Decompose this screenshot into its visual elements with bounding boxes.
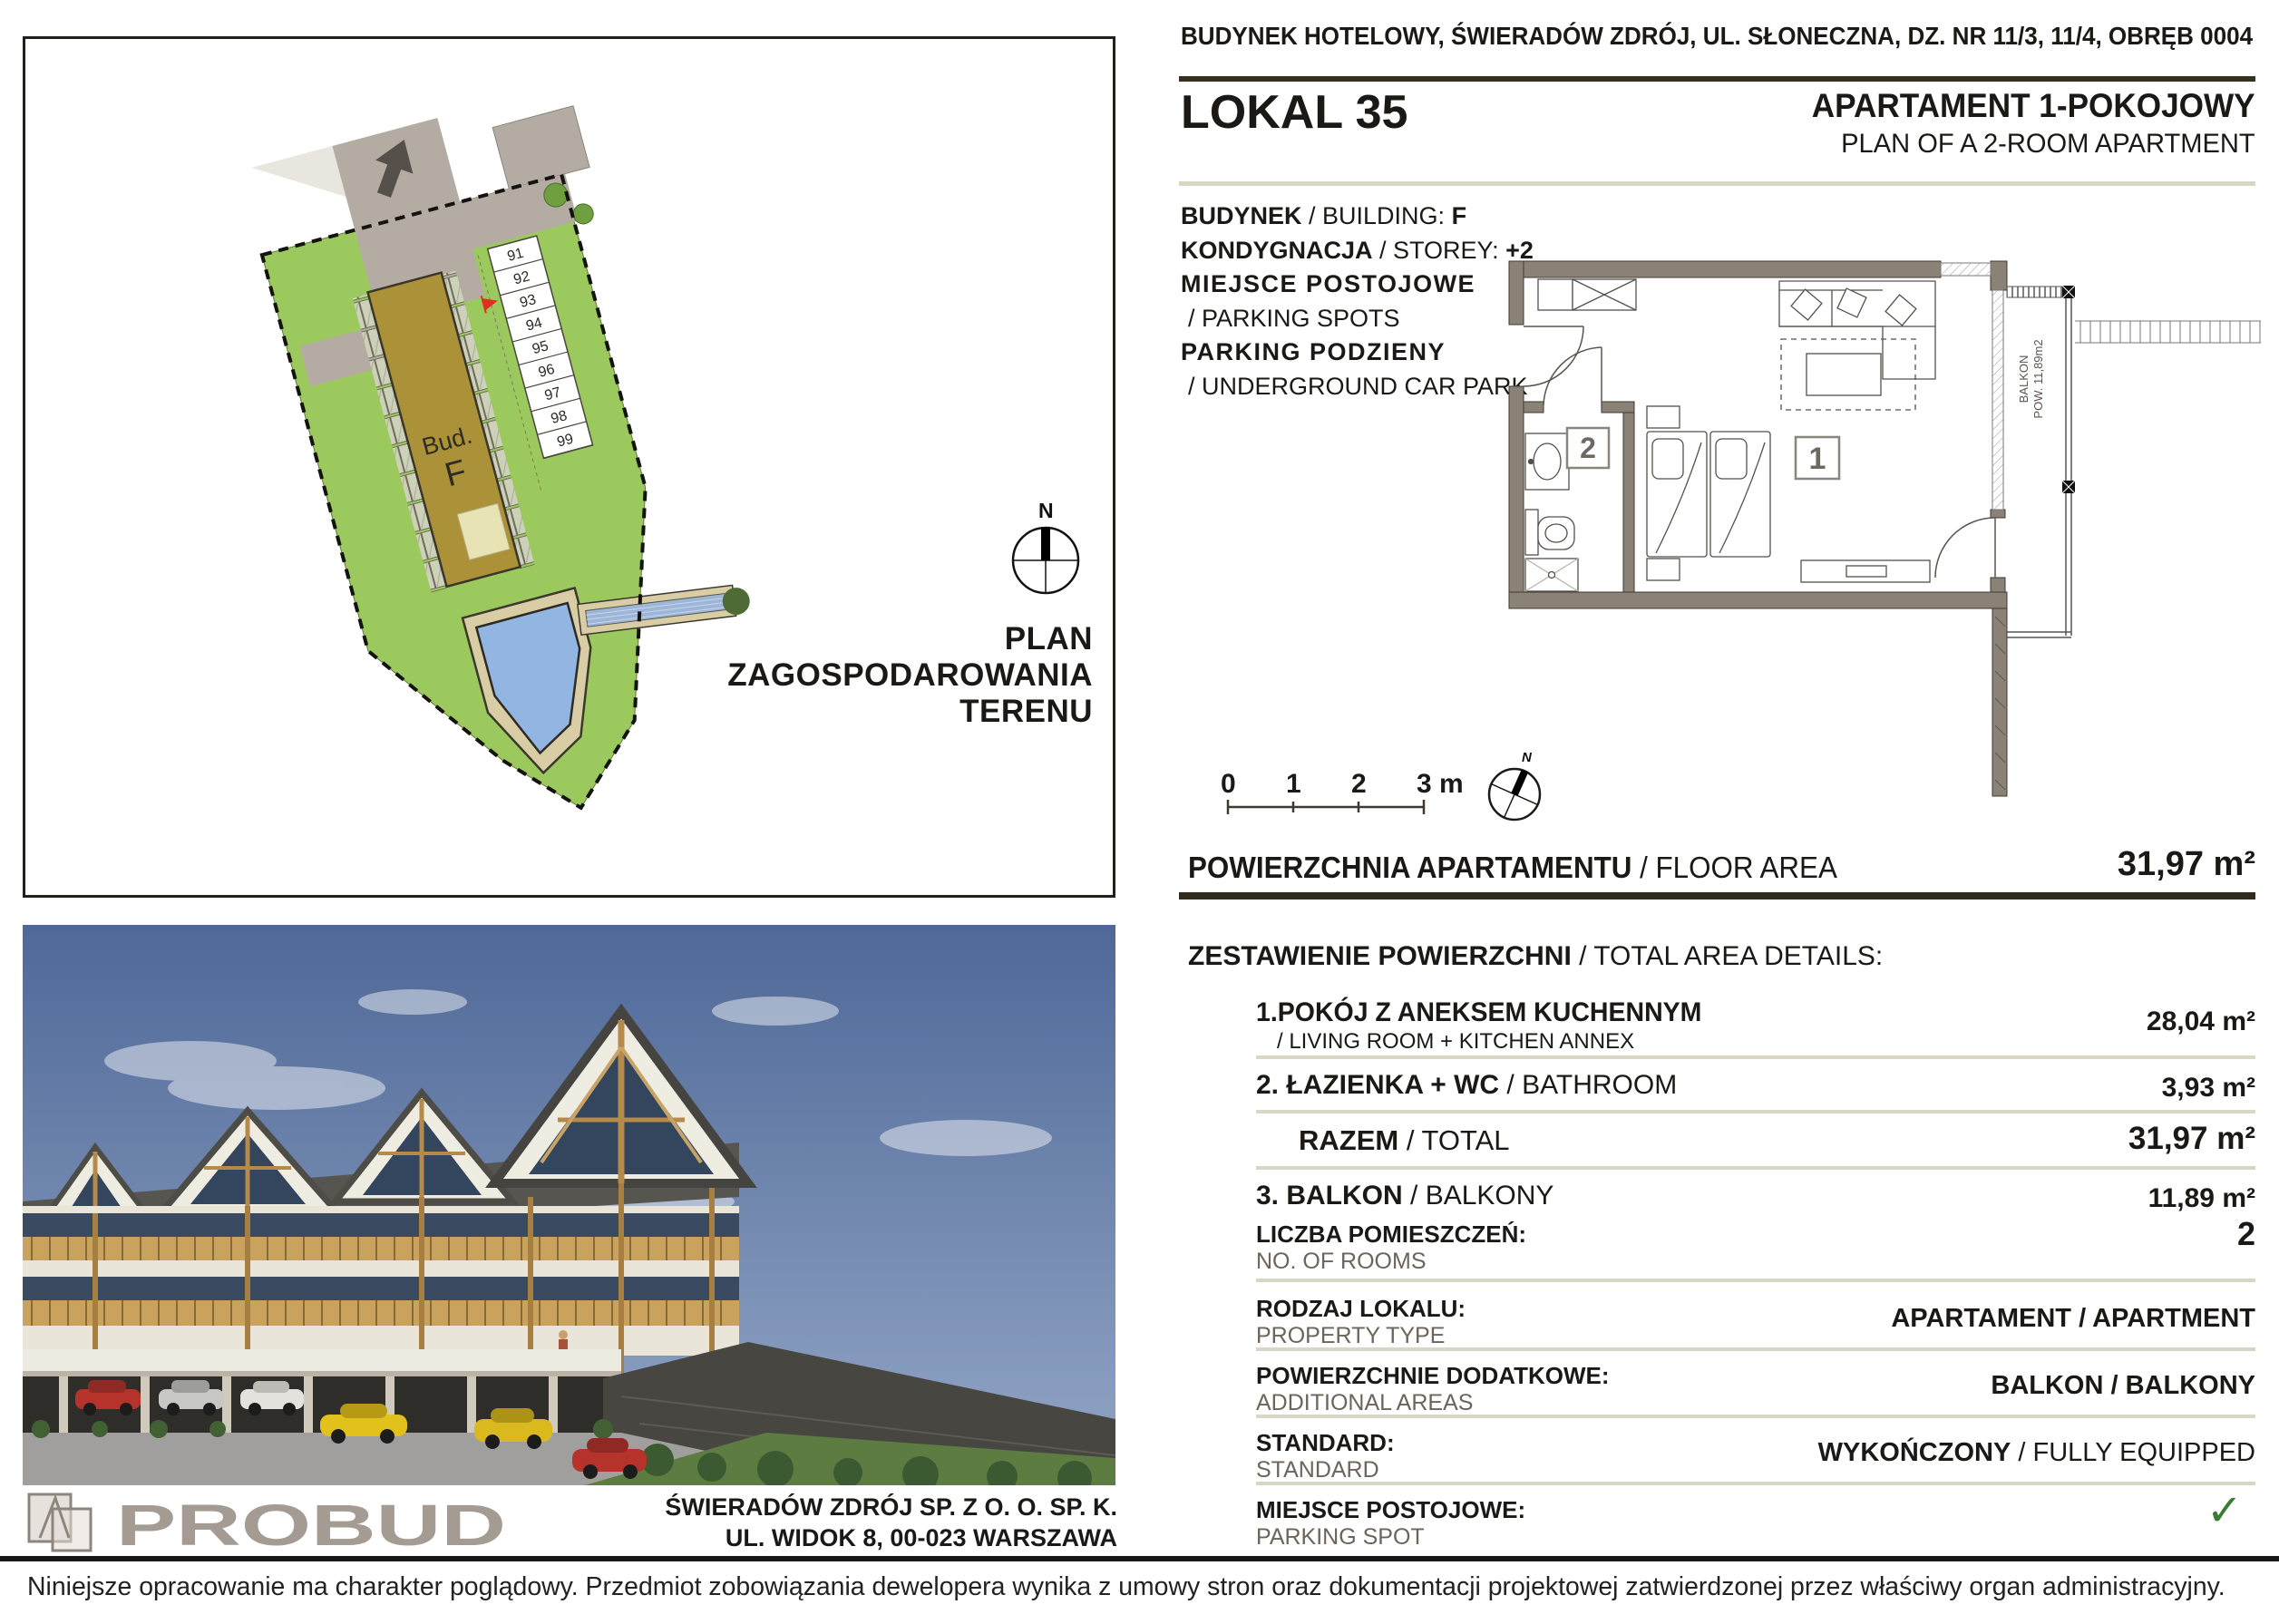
detail-storey: KONDYGNACJA / STOREY: +2: [1181, 234, 1534, 268]
site-plan-panel: Bud. F 91 92 93 94 95 96 97 98 99: [23, 36, 1115, 898]
table-separator: [1256, 1347, 2255, 1351]
probud-logo-mark-icon: [29, 1494, 91, 1551]
prop3-label-pl: POWIERZCHNIE DODATKOWE:: [1256, 1362, 1610, 1390]
scale-tick-label: 3 m: [1417, 769, 1464, 799]
area-row2-value: 3,93 m²: [2162, 1073, 2255, 1104]
svg-text:N: N: [1038, 499, 1054, 522]
floor-area-pl: POWIERZCHNIA APARTAMENTU: [1188, 851, 1631, 884]
external-stairs: [2075, 321, 2261, 343]
area-row4-pl: 3. BALKON: [1256, 1181, 1403, 1211]
parking-check-icon: ✓: [2206, 1485, 2243, 1536]
area-row4-label: 3. BALKON / BALKONY: [1256, 1181, 1553, 1211]
balcony: BALKON POW. 11,89m2: [2007, 286, 2075, 637]
address-header: BUDYNEK HOTELOWY, ŚWIERADÓW ZDRÓJ, UL. S…: [1181, 22, 2253, 51]
scale-bar: 0 1 2 3 m: [1212, 767, 1484, 825]
room2-label: 2: [1580, 432, 1596, 464]
prop1-value: 2: [2237, 1215, 2255, 1253]
prop4-value-pl: WYKOŃCZONY: [1818, 1438, 2011, 1467]
area-row2-label: 2. ŁAZIENKA + WC / BATHROOM: [1256, 1070, 1677, 1101]
footer-divider: [0, 1556, 2279, 1561]
site-plan-title-line: ZAGOSPODAROWANIA: [727, 657, 1093, 694]
detail-garage-en: / UNDERGROUND CAR PARK: [1181, 370, 1534, 404]
apartment-card-page: Bud. F 91 92 93 94 95 96 97 98 99: [0, 0, 2279, 1624]
header-rule: [1179, 76, 2255, 82]
probud-logo: PROBUD: [25, 1489, 533, 1560]
probud-wordmark: PROBUD: [116, 1493, 506, 1558]
terrace-shadow: [23, 1371, 621, 1376]
prop3-label-en: ADDITIONAL AREAS: [1256, 1390, 1473, 1416]
sink-tap: [1529, 460, 1534, 464]
detail-garage-pl: PARKING PODZIENY: [1181, 335, 1534, 370]
room1-label: 1: [1809, 442, 1826, 476]
table-separator: [1256, 1279, 2255, 1282]
bed-pillow: [1716, 439, 1747, 479]
site-plan-drawing: Bud. F 91 92 93 94 95 96 97 98 99: [25, 39, 1113, 895]
building-rendering: [23, 925, 1115, 1485]
prop4-value: WYKOŃCZONY / FULLY EQUIPPED: [1818, 1438, 2255, 1468]
coffee-table: [1807, 354, 1881, 395]
details-heading-pl: ZESTAWIENIE POWIERZCHNI: [1188, 941, 1572, 971]
sideboard-item: [1846, 566, 1886, 577]
prop1-label-en: NO. OF ROOMS: [1256, 1249, 1427, 1275]
sink-basin: [1534, 443, 1561, 480]
detail-storey-en: / STOREY:: [1373, 237, 1506, 264]
area-row4-value: 11,89 m²: [2148, 1183, 2255, 1214]
site-plan-title-line: TERENU: [727, 694, 1093, 730]
facade: [23, 1183, 739, 1378]
floor-plan-drawing: BALKON POW. 11,89m2: [1487, 136, 2279, 843]
unit-number: LOKAL 35: [1181, 85, 1407, 140]
floor-area-rule: [1179, 892, 2255, 900]
area-row1-label: 1.POKÓJ Z ANEKSEM KUCHENNYM: [1256, 997, 1701, 1028]
prop2-label-pl: RODZAJ LOKALU:: [1256, 1295, 1466, 1323]
disclaimer-text: Niniejsze opracowanie ma charakter poglą…: [27, 1572, 2225, 1602]
building-rendering-svg: [23, 925, 1115, 1485]
area-row1-value: 28,04 m²: [2147, 1006, 2255, 1037]
details-heading: ZESTAWIENIE POWIERZCHNI / TOTAL AREA DET…: [1188, 941, 1883, 972]
area-row1-sublabel: / LIVING ROOM + KITCHEN ANNEX: [1277, 1029, 1634, 1055]
area-row2-pl: 2. ŁAZIENKA + WC: [1256, 1070, 1499, 1100]
floor-area-en: / FLOOR AREA: [1631, 851, 1836, 884]
prop5-label-pl: MIEJSCE POSTOJOWE:: [1256, 1496, 1525, 1524]
table-separator: [1256, 1055, 2255, 1059]
detail-parking-en: / PARKING SPOTS: [1181, 302, 1534, 336]
site-plan-title-line: PLAN: [727, 621, 1093, 657]
balcony-post-icon: [2062, 286, 2075, 298]
balcony-post-icon: [2062, 481, 2075, 493]
nightstand: [1647, 559, 1680, 580]
upper-parking-area: [492, 106, 589, 189]
window-glazing: [1941, 263, 2003, 510]
company-line1: ŚWIERADÓW ZDRÓJ SP. Z O. O. SP. K.: [580, 1492, 1117, 1522]
prop5-label-en: PARKING SPOT: [1256, 1524, 1425, 1551]
shower-drain: [1549, 572, 1555, 579]
toilet-seat: [1545, 524, 1567, 542]
floor-area-value: 31,97 m²: [2118, 845, 2255, 884]
nightstand: [1647, 406, 1680, 428]
prop3-value: BALKON / BALKONY: [1991, 1371, 2255, 1401]
svg-text:BALKON: BALKON: [2017, 355, 2031, 404]
prop4-label-pl: STANDARD:: [1256, 1429, 1395, 1457]
terrace-band: [23, 1349, 621, 1371]
area-total-pl: RAZEM: [1299, 1124, 1398, 1156]
site-compass-icon: N: [1013, 499, 1078, 593]
table-separator: [1256, 1166, 2255, 1170]
site-plan-title: PLAN ZAGOSPODAROWANIA TERENU: [727, 621, 1093, 730]
floor-area-heading: POWIERZCHNIA APARTAMENTU / FLOOR AREA: [1188, 851, 1837, 885]
table-separator: [1256, 1110, 2255, 1113]
toilet-tank: [1525, 510, 1538, 555]
company-address: ŚWIERADÓW ZDRÓJ SP. Z O. O. SP. K. UL. W…: [580, 1492, 1117, 1553]
unit-type-pl: APARTAMENT 1-POKOJOWY: [1812, 87, 2255, 125]
scale-tick-label: 1: [1286, 769, 1301, 799]
area-row4-en: / BALKONY: [1403, 1181, 1554, 1211]
road-entry-shoulder: [252, 146, 346, 219]
detail-storey-pl: KONDYGNACJA: [1181, 237, 1373, 264]
svg-text:POW. 11,89m2: POW. 11,89m2: [2031, 339, 2045, 418]
area-total-en: / TOTAL: [1398, 1124, 1509, 1156]
detail-building: BUDYNEK / BUILDING: F: [1181, 199, 1534, 234]
detail-building-value: F: [1452, 202, 1467, 229]
balcony-label: BALKON POW. 11,89m2: [2017, 339, 2045, 418]
site-plan-rotated-group: Bud. F 91 92 93 94 95 96 97 98 99: [239, 72, 793, 851]
prop1-label-pl: LICZBA POMIESZCZEŃ:: [1256, 1220, 1526, 1249]
scale-tick-label: 0: [1221, 769, 1236, 799]
beds: [1647, 406, 1770, 580]
area-total-value: 31,97 m²: [2128, 1121, 2255, 1157]
area-total-label: RAZEM / TOTAL: [1299, 1124, 1510, 1157]
wardrobe: [1538, 279, 1573, 310]
detail-building-en: / BUILDING:: [1302, 202, 1452, 229]
prop4-label-en: STANDARD: [1256, 1457, 1379, 1483]
table-separator: [1256, 1482, 2255, 1485]
prop2-label-en: PROPERTY TYPE: [1256, 1323, 1445, 1349]
plan-compass-icon: N: [1478, 749, 1554, 831]
scale-tick-label: 2: [1351, 769, 1367, 799]
prop2-value: APARTAMENT / APARTMENT: [1891, 1304, 2255, 1334]
area-row2-en: / BATHROOM: [1499, 1070, 1677, 1100]
company-line2: UL. WIDOK 8, 00-023 WARSZAWA: [580, 1522, 1117, 1553]
detail-parking-pl: MIEJSCE POSTOJOWE: [1181, 267, 1534, 302]
unit-details: BUDYNEK / BUILDING: F KONDYGNACJA / STOR…: [1181, 199, 1534, 404]
bed-pillow: [1652, 439, 1683, 479]
compass-n-label: N: [1522, 750, 1533, 765]
prop4-value-en: / FULLY EQUIPPED: [2011, 1438, 2255, 1467]
details-heading-en: / TOTAL AREA DETAILS:: [1572, 941, 1883, 971]
detail-building-pl: BUDYNEK: [1181, 202, 1302, 229]
table-separator: [1256, 1415, 2255, 1418]
